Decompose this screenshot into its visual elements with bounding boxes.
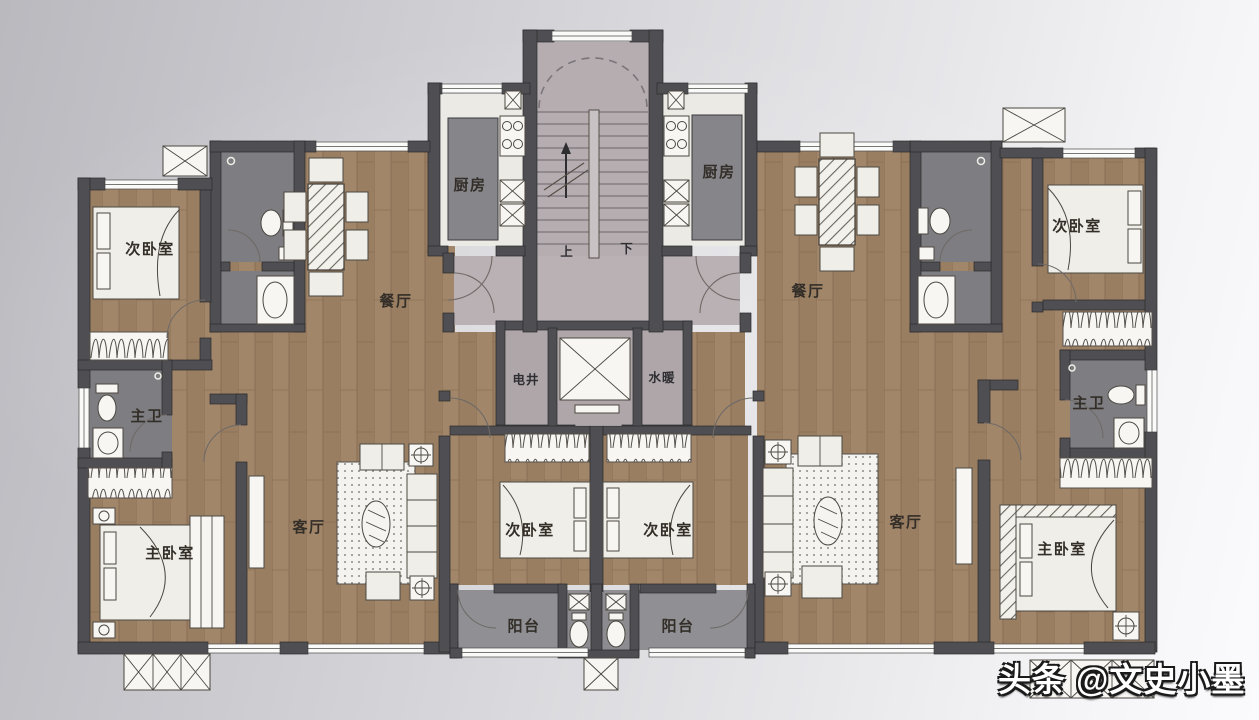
bed-master-left xyxy=(93,508,224,638)
coffee-table-left xyxy=(362,501,390,547)
flue-left-icon xyxy=(505,91,521,109)
room-label-bedroom-top-right: 次卧室 xyxy=(1052,217,1102,235)
window-kitchen-left xyxy=(442,84,502,93)
wardrobe-center-bedroom-right xyxy=(607,434,691,462)
window-master-left xyxy=(208,644,280,653)
side-table-left-top-icon xyxy=(409,444,433,466)
window-master-bath-left xyxy=(79,388,89,448)
watermark: 头条 @文史小墨 xyxy=(998,663,1258,698)
side-table-right-top-icon xyxy=(765,440,791,464)
room-label-living-left: 客厅 xyxy=(291,518,325,536)
stair-stringer xyxy=(589,110,599,258)
room-label-dining-right: 餐厅 xyxy=(791,282,824,300)
stove-left-icon xyxy=(500,116,525,156)
ac-platform-right-icon xyxy=(1003,108,1065,142)
flower-box-left xyxy=(124,654,210,690)
flue-bottom-center-icon xyxy=(584,658,618,690)
window-balcony-right xyxy=(649,648,745,657)
window-master-bath-right xyxy=(1147,370,1157,432)
label-plumbing-shaft: 水暖 xyxy=(648,370,675,385)
room-label-balcony-left: 阳台 xyxy=(507,617,540,635)
floor-bath-right-upper xyxy=(921,152,991,262)
window-living-right xyxy=(788,644,934,653)
window-balcony-left xyxy=(462,648,588,657)
room-label-bedroom-center-left: 次卧室 xyxy=(505,521,555,539)
room-label-bedroom-top-left: 次卧室 xyxy=(125,240,175,258)
room-label-living-right: 客厅 xyxy=(888,513,922,531)
floor-bath-left-upper xyxy=(221,152,294,262)
room-label-bedroom-center-right: 次卧室 xyxy=(643,521,693,539)
flue-right-icon xyxy=(668,91,684,109)
room-label-master-bath-right: 主卫 xyxy=(1072,394,1105,412)
window-master-right xyxy=(994,644,1084,653)
room-label-master-bath-left: 主卫 xyxy=(130,407,163,425)
window-living-left xyxy=(308,644,424,653)
label-stair-up: 上 xyxy=(560,244,574,259)
window-dining-left xyxy=(316,142,408,151)
floor-left-hall xyxy=(450,332,498,437)
side-table-left-bottom-icon xyxy=(410,576,434,600)
window-stair-top xyxy=(552,31,632,41)
room-label-balcony-right: 阳台 xyxy=(661,617,694,635)
basin-bath-left-icon xyxy=(257,276,294,324)
window-kitchen-right xyxy=(688,84,748,93)
floor-plan-photo: 次卧室 次卧室 厨房 厨房 餐厅 餐厅 主卫 主卫 主卧室 主卧室 客厅 客厅 … xyxy=(0,0,1259,720)
wardrobe-bedroom-top-right xyxy=(1063,312,1152,346)
bed-center-right xyxy=(603,482,693,558)
wardrobe-center-bedroom-left xyxy=(505,434,589,462)
stove-right-icon xyxy=(664,116,689,156)
room-label-master-right: 主卧室 xyxy=(1037,540,1087,558)
side-table-right-bottom-icon xyxy=(765,572,791,596)
wardrobe-master-right xyxy=(1060,458,1152,488)
label-electrical-shaft: 电井 xyxy=(512,372,539,387)
floor-plan-drawing: 次卧室 次卧室 厨房 厨房 餐厅 餐厅 主卫 主卫 主卧室 主卧室 客厅 客厅 … xyxy=(0,0,1259,720)
lamp-corner-right-icon xyxy=(1113,612,1139,640)
basin-bath-right-icon xyxy=(918,276,955,324)
wc-left-fixtures xyxy=(569,594,589,647)
floor-right-hall xyxy=(690,332,745,437)
tv-cabinet-right xyxy=(956,468,972,564)
window-bedroom-top-right xyxy=(1063,149,1135,158)
label-stair-down: 下 xyxy=(620,242,634,256)
wc-right-fixtures xyxy=(606,594,626,647)
coffee-table-right xyxy=(814,497,842,545)
room-label-dining-left: 餐厅 xyxy=(379,292,412,310)
tv-cabinet-left xyxy=(249,476,264,568)
ac-platform-left-icon xyxy=(163,146,207,176)
room-label-kitchen-right: 厨房 xyxy=(702,163,735,181)
bed-center-left xyxy=(500,482,590,558)
wardrobe-master-left xyxy=(88,468,172,498)
room-label-kitchen-left: 厨房 xyxy=(453,176,486,194)
window-bedroom-top-left xyxy=(105,180,178,189)
wardrobe-bedroom-top-left xyxy=(90,332,168,360)
room-label-master-left: 主卧室 xyxy=(145,544,195,562)
